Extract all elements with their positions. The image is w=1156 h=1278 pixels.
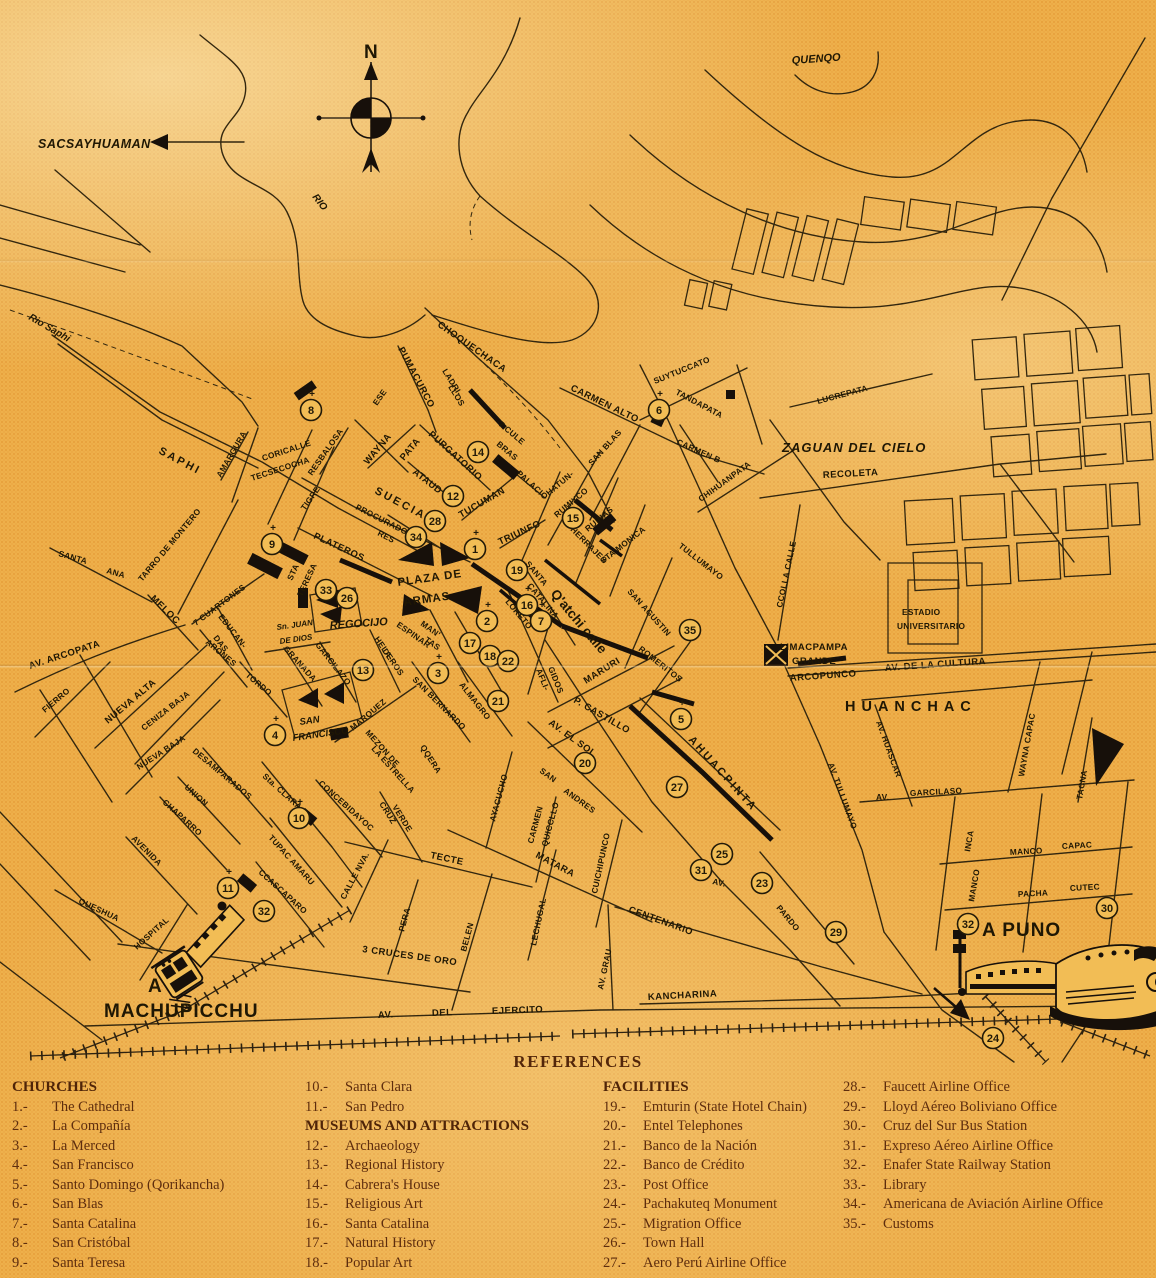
sacsayhuaman-arrow-icon [150,134,244,150]
map-label: A [148,976,163,997]
church-cross-icon: + [525,584,531,595]
church-cross-icon: + [679,698,685,709]
map-label: QUESHUA [77,896,121,923]
poi-marker-24: 24 [983,1028,1004,1049]
map-label: FIERRO [40,685,72,714]
svg-text:32: 32 [258,906,270,918]
map-label: CONCEBIDAYOC [317,778,377,833]
church-cross-icon: + [226,867,232,878]
poi-marker-32: 32 [958,914,979,935]
map-label: N [364,42,379,63]
svg-text:35: 35 [684,625,696,637]
map-label: ESE [370,387,388,407]
map-label: AV. [876,792,889,802]
svg-text:31: 31 [695,865,707,877]
map-label: RESBALOSA [305,427,345,478]
svg-text:24: 24 [987,1033,1000,1045]
poi-marker-34: 34 [406,527,427,548]
poi-marker-17: 17 [460,633,481,654]
map-label: NUEVA BAJA [135,733,187,772]
svg-text:20: 20 [579,758,591,770]
map-label: LUCREPATA [816,383,869,406]
map-label: CALLE NVA. [338,850,371,901]
map-label: PATA [398,436,423,463]
poi-marker-20: 20 [575,753,596,774]
map-label: HUANCHAC [845,699,977,715]
poi-marker-23: 23 [752,873,773,894]
poi-marker-1: 1+ [465,528,486,560]
svg-text:4: 4 [272,730,279,742]
map-label: QUENQO [791,52,841,67]
svg-text:10: 10 [293,813,305,825]
map-canvas: SACSAYHUAMANQUENQONRIORio SaphiSAPHIAMAR… [0,0,1156,1278]
svg-text:9: 9 [269,539,275,551]
map-label: TAS [423,634,443,652]
map-label: PLATEROS [312,531,367,564]
map-label: SAN [299,714,322,728]
map-label: PALACIO [515,468,551,502]
map-label: AYACUCHO [487,773,509,823]
poi-marker-4: 4+ [265,714,286,746]
map-label: UNION [183,782,211,808]
street-network [0,308,1156,1062]
svg-text:30: 30 [1101,903,1113,915]
map-label: TACNA [1074,769,1089,800]
svg-text:15: 15 [567,513,579,525]
svg-text:18: 18 [484,651,496,663]
map-label: TIGRE [298,484,322,512]
map-label: DEL [432,1007,453,1019]
map-label: KANCHARINA [648,988,718,1003]
church-cross-icon: + [485,600,491,611]
map-label: PUMACURCO [395,345,436,410]
map-label: CCOLLA CALLE [774,540,798,609]
svg-text:16: 16 [521,600,533,612]
paper-fold-crease [0,664,1156,668]
church-cross-icon: + [539,600,545,611]
church-cross-icon: + [473,528,479,539]
poi-marker-14: 14 [468,442,489,463]
map-label: LIMACPAMPA [780,642,848,653]
map-label: CHIHUANPATA [696,459,752,504]
map-label: EJERCITO [492,1004,544,1017]
map-label: CUTEC [1070,881,1101,893]
map-label: AV. HUASCAR [874,719,904,778]
map-label: STA [285,562,301,582]
svg-text:19: 19 [511,565,523,577]
map-label: RECOLETA [823,467,879,481]
map-label: CENTENARIO [627,904,694,938]
poi-marker-15: 15 [563,508,584,529]
svg-text:14: 14 [472,447,485,459]
svg-text:21: 21 [492,696,504,708]
map-label: PARDO [774,903,802,933]
poi-marker-31: 31 [691,860,712,881]
svg-text:8: 8 [308,405,314,417]
poi-marker-12: 12 [443,486,464,507]
map-label: AVENIDA [130,833,165,868]
poi-marker-13: 13 [353,660,374,681]
map-label: TARRO DE MONTERO [136,506,203,583]
map-label: FRANCISCO [292,725,350,744]
compass-rose-icon [317,62,426,173]
map-label: TUCUMAN [457,485,507,520]
church-cross-icon: + [657,389,663,400]
map-label: ESTADIO [902,607,941,617]
map-label: MACHUPICCHU [104,1001,259,1022]
svg-text:26: 26 [341,593,353,605]
svg-text:28: 28 [429,516,441,528]
map-label: GARCILASO [910,785,963,798]
map-label: MELOC [148,593,182,626]
map-label: Rio Saphi [27,312,73,345]
map-label: P. CASTILLO [572,695,632,736]
svg-text:34: 34 [410,532,423,544]
poi-marker-35: 35 [680,620,701,641]
map-label: ZAGUAN DEL CIELO [781,440,926,455]
street-labels-layer: SACSAYHUAMANQUENQONRIORio SaphiSAPHIAMAR… [27,42,1101,1022]
map-label: ATAUD [410,467,444,497]
church-cross-icon: + [270,523,276,534]
map-label: LLOS [446,383,467,408]
map-label: PLAZA DE [397,568,463,589]
svg-text:23: 23 [756,878,768,890]
svg-text:7: 7 [538,616,544,628]
poi-marker-21: 21 [488,691,509,712]
poi-marker-9: 9+ [262,523,283,555]
map-label: 3 CRUCES DE ORO [362,944,458,968]
map-label: SUYTUCCATO [652,354,711,386]
map-label: MARQUEZ [348,697,388,733]
svg-text:17: 17 [464,638,476,650]
poi-marker-33: 33 [316,580,337,601]
station-dot-puno [958,988,966,996]
map-label: AV. [378,1009,394,1021]
map-label: TRIUNFO [497,518,543,547]
map-label: ARCOPUNCO [789,668,856,684]
poi-markers-layer: 1+2+3+4+5+6+7+8+9+10+11+1213141516+17181… [218,389,1118,1049]
map-label: INCA [962,829,976,852]
tacna-arrow-icon [1092,728,1124,786]
poi-marker-26: 26 [337,588,358,609]
map-label: PERA [396,906,412,932]
map-label: UNIVERSITARIO [897,621,966,631]
map-label: MANCO [966,868,982,902]
poi-marker-30: 30 [1097,898,1118,919]
svg-text:33: 33 [320,585,332,597]
map-label: CUICHIPUNCO [589,832,612,895]
poi-marker-2: 2+ [477,600,498,632]
poi-marker-27: 27 [667,777,688,798]
svg-text:5: 5 [678,714,684,726]
svg-text:11: 11 [222,883,234,895]
cusco-tourist-map-page: SACSAYHUAMANQUENQONRIORio SaphiSAPHIAMAR… [0,0,1156,1278]
svg-text:6: 6 [656,405,662,417]
map-label: SAN [538,766,559,785]
map-label: LECHUGAL [528,897,548,947]
church-cross-icon: + [297,797,303,808]
map-label: DE DIOS [279,632,313,646]
poi-marker-11: 11+ [218,867,239,899]
map-label: TULLUMAYO [677,541,726,582]
poi-marker-6: 6+ [649,389,670,421]
map-label: SAN AGUSTIN [626,587,674,638]
map-label: SAPHI [157,445,203,477]
svg-text:3: 3 [435,668,441,680]
poi-marker-25: 25 [712,844,733,865]
map-label: ARMAS [403,591,451,609]
map-label: SACSAYHUAMAN [38,137,151,151]
map-label: AV. [712,876,727,889]
map-label: ANDRES [562,786,598,816]
paper-fold-crease [0,259,1156,263]
map-label: RIO [310,192,330,213]
svg-text:25: 25 [716,849,728,861]
map-label: AV. TULLUMAYO [826,761,859,830]
svg-text:2: 2 [484,616,490,628]
poi-marker-22: 22 [498,651,519,672]
map-label: ANA [105,565,126,580]
church-cross-icon: + [273,714,279,725]
poi-marker-19: 19 [507,560,528,581]
map-label: MANCO [1010,845,1044,857]
poi-marker-28: 28 [425,511,446,532]
svg-text:27: 27 [671,782,683,794]
map-label: CARMEN ALTO [569,383,641,426]
svg-text:12: 12 [447,491,459,503]
svg-text:29: 29 [830,927,842,939]
map-label: A PUNO [982,920,1061,941]
map-label: PACHA [1018,887,1049,899]
map-label: AHUACPINTA [686,734,760,814]
church-cross-icon: + [309,389,315,400]
map-label: Sn. JUAN [276,618,314,632]
church-cross-icon: + [436,652,442,663]
map-label: CAPAC [1062,839,1093,851]
svg-text:32: 32 [962,919,974,931]
map-label: SAN BLAS [586,427,624,467]
map-label: SANTA [57,548,88,566]
svg-text:1: 1 [472,544,478,556]
poi-marker-29: 29 [826,922,847,943]
map-label: QQERA [418,743,443,775]
map-label: TECTE [429,850,464,868]
map-label: TORDO [244,670,275,698]
map-label: TECSECOCHA [250,455,311,483]
map-label: MARURI [582,655,623,686]
poi-marker-32: 32 [254,901,275,922]
